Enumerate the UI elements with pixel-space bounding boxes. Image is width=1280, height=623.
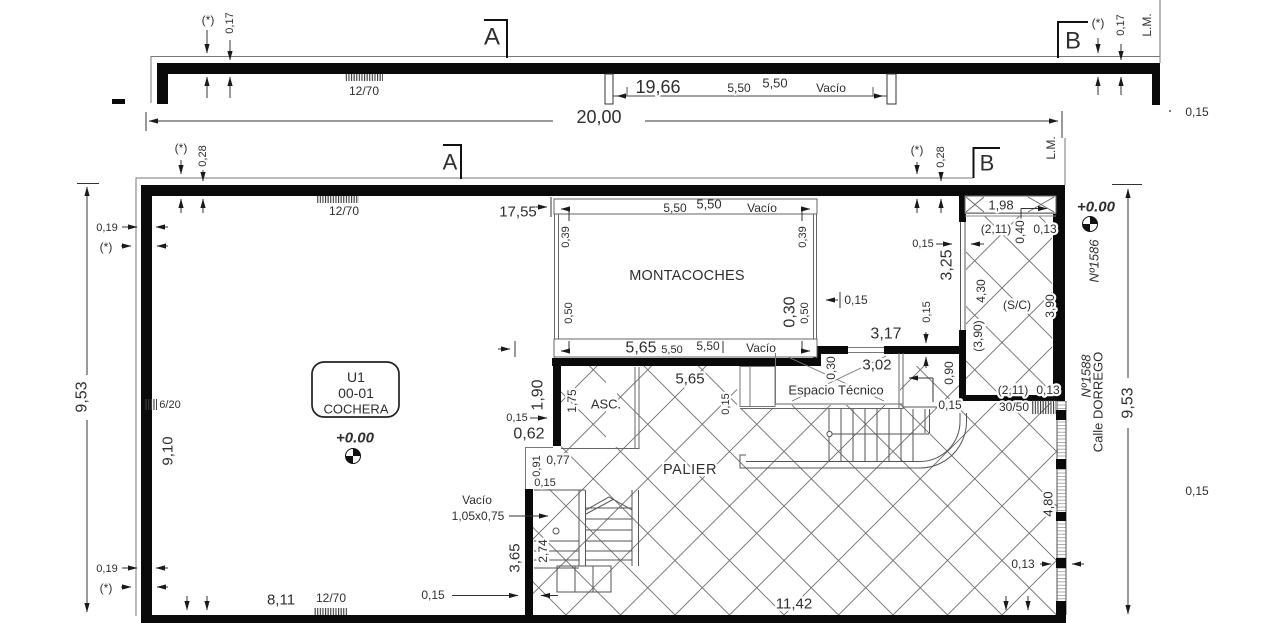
svg-text:20,00: 20,00 xyxy=(576,107,621,127)
svg-text:9,53: 9,53 xyxy=(74,381,91,412)
svg-text:B: B xyxy=(1065,28,1081,55)
svg-text:Nº1586: Nº1586 xyxy=(1087,239,1102,283)
svg-text:PALIER: PALIER xyxy=(663,462,717,478)
svg-text:(*): (*) xyxy=(100,240,113,254)
svg-text:12/70: 12/70 xyxy=(316,591,346,605)
svg-text:Calle DORREGO: Calle DORREGO xyxy=(1091,352,1106,452)
svg-text:0,30: 0,30 xyxy=(782,296,799,327)
svg-text:0,90: 0,90 xyxy=(942,361,956,385)
svg-text:0,17: 0,17 xyxy=(1115,14,1127,35)
svg-text:0,77: 0,77 xyxy=(546,453,570,467)
svg-text:(*): (*) xyxy=(1092,16,1105,30)
svg-text:0,28: 0,28 xyxy=(197,145,209,166)
svg-text:8,11: 8,11 xyxy=(267,592,295,609)
svg-text:0,15: 0,15 xyxy=(1185,105,1209,119)
svg-text:(3,90): (3,90) xyxy=(971,320,985,351)
svg-text:1,05x0,75: 1,05x0,75 xyxy=(452,509,505,523)
svg-text:0,40: 0,40 xyxy=(1013,220,1027,244)
svg-text:0,13: 0,13 xyxy=(1033,222,1057,236)
svg-text:5,50: 5,50 xyxy=(727,81,751,95)
svg-text:3,17: 3,17 xyxy=(870,326,901,343)
svg-text:0,15: 0,15 xyxy=(938,398,962,412)
svg-text:COCHERA: COCHERA xyxy=(323,402,388,417)
svg-text:5,65: 5,65 xyxy=(675,371,704,388)
svg-text:Vacío: Vacío xyxy=(746,341,776,355)
svg-text:(*): (*) xyxy=(100,581,113,595)
svg-text:ASC.: ASC. xyxy=(591,397,621,412)
svg-text:0,15: 0,15 xyxy=(534,477,555,489)
svg-text:5,50: 5,50 xyxy=(661,344,682,356)
svg-text:9,10: 9,10 xyxy=(160,436,177,465)
svg-text:1,90: 1,90 xyxy=(530,379,547,410)
svg-text:0,39: 0,39 xyxy=(560,226,572,247)
svg-text:0,39: 0,39 xyxy=(797,226,809,247)
svg-text:00-01: 00-01 xyxy=(338,385,374,401)
svg-text:0,19: 0,19 xyxy=(96,222,117,234)
svg-text:0,30: 0,30 xyxy=(824,356,838,380)
svg-text:12/70: 12/70 xyxy=(349,84,379,98)
svg-text:0,15: 0,15 xyxy=(506,412,527,424)
svg-text:11,42: 11,42 xyxy=(776,596,812,613)
svg-text:5,65: 5,65 xyxy=(625,340,656,357)
svg-text:5,50: 5,50 xyxy=(696,339,720,353)
svg-text:B: B xyxy=(980,151,995,176)
svg-text:A: A xyxy=(484,24,500,51)
svg-text:0,50: 0,50 xyxy=(799,302,811,323)
svg-text:0,15: 0,15 xyxy=(844,293,868,307)
svg-text:5,50: 5,50 xyxy=(696,197,721,212)
svg-text:6/20: 6/20 xyxy=(159,399,180,411)
svg-text:0,17: 0,17 xyxy=(224,12,236,33)
svg-text:0,15: 0,15 xyxy=(921,301,933,322)
svg-text:19,66: 19,66 xyxy=(635,77,680,97)
svg-text:+0.00: +0.00 xyxy=(336,430,375,447)
svg-text:0,15: 0,15 xyxy=(1185,484,1209,498)
svg-text:3,02: 3,02 xyxy=(862,357,891,374)
svg-text:(2,11): (2,11) xyxy=(981,222,1011,236)
svg-text:0,15: 0,15 xyxy=(720,393,732,414)
svg-text:3,65: 3,65 xyxy=(507,543,524,572)
svg-text:L.M.: L.M. xyxy=(1044,136,1058,159)
svg-text:L.M.: L.M. xyxy=(1140,13,1154,36)
svg-text:17,55: 17,55 xyxy=(499,204,537,221)
svg-text:0,15: 0,15 xyxy=(912,238,933,250)
svg-text:5,50: 5,50 xyxy=(762,76,787,91)
svg-text:0,28: 0,28 xyxy=(935,146,947,167)
svg-text:1,75: 1,75 xyxy=(565,389,579,413)
svg-text:0,13: 0,13 xyxy=(1011,557,1035,571)
svg-text:0,50: 0,50 xyxy=(563,302,575,323)
svg-text:+0.00: +0.00 xyxy=(1077,199,1116,216)
svg-text:0,62: 0,62 xyxy=(513,426,544,443)
svg-text:0,15: 0,15 xyxy=(421,588,445,602)
svg-text:A: A xyxy=(443,150,458,175)
svg-text:9,53: 9,53 xyxy=(1120,387,1137,418)
svg-text:Vacío: Vacío xyxy=(816,81,846,95)
svg-text:5,50: 5,50 xyxy=(663,201,687,215)
svg-text:4,80: 4,80 xyxy=(1041,491,1056,516)
svg-text:Vacío: Vacío xyxy=(747,201,777,215)
svg-text:(2,11): (2,11) xyxy=(998,383,1028,397)
svg-text:1,98: 1,98 xyxy=(988,198,1013,213)
svg-text:Vacío: Vacío xyxy=(462,493,492,507)
svg-text:3,90: 3,90 xyxy=(1043,294,1057,318)
svg-text:(*): (*) xyxy=(911,143,924,157)
svg-text:3,25: 3,25 xyxy=(939,249,956,280)
svg-text:0,19: 0,19 xyxy=(96,563,117,575)
svg-text:30/50: 30/50 xyxy=(999,400,1029,414)
svg-text:MONTACOCHES: MONTACOCHES xyxy=(629,268,745,284)
svg-text:U1: U1 xyxy=(347,369,365,385)
svg-text:0,13: 0,13 xyxy=(1036,383,1060,397)
svg-text:(S/C): (S/C) xyxy=(1003,298,1031,312)
svg-text:0,91: 0,91 xyxy=(531,455,543,476)
svg-text:(*): (*) xyxy=(175,141,188,155)
svg-text:(*): (*) xyxy=(202,13,215,27)
svg-text:12/70: 12/70 xyxy=(329,204,359,218)
svg-text:Espacio Técnico: Espacio Técnico xyxy=(788,383,883,398)
svg-text:4,30: 4,30 xyxy=(974,279,988,303)
svg-text:2,74: 2,74 xyxy=(536,539,550,563)
